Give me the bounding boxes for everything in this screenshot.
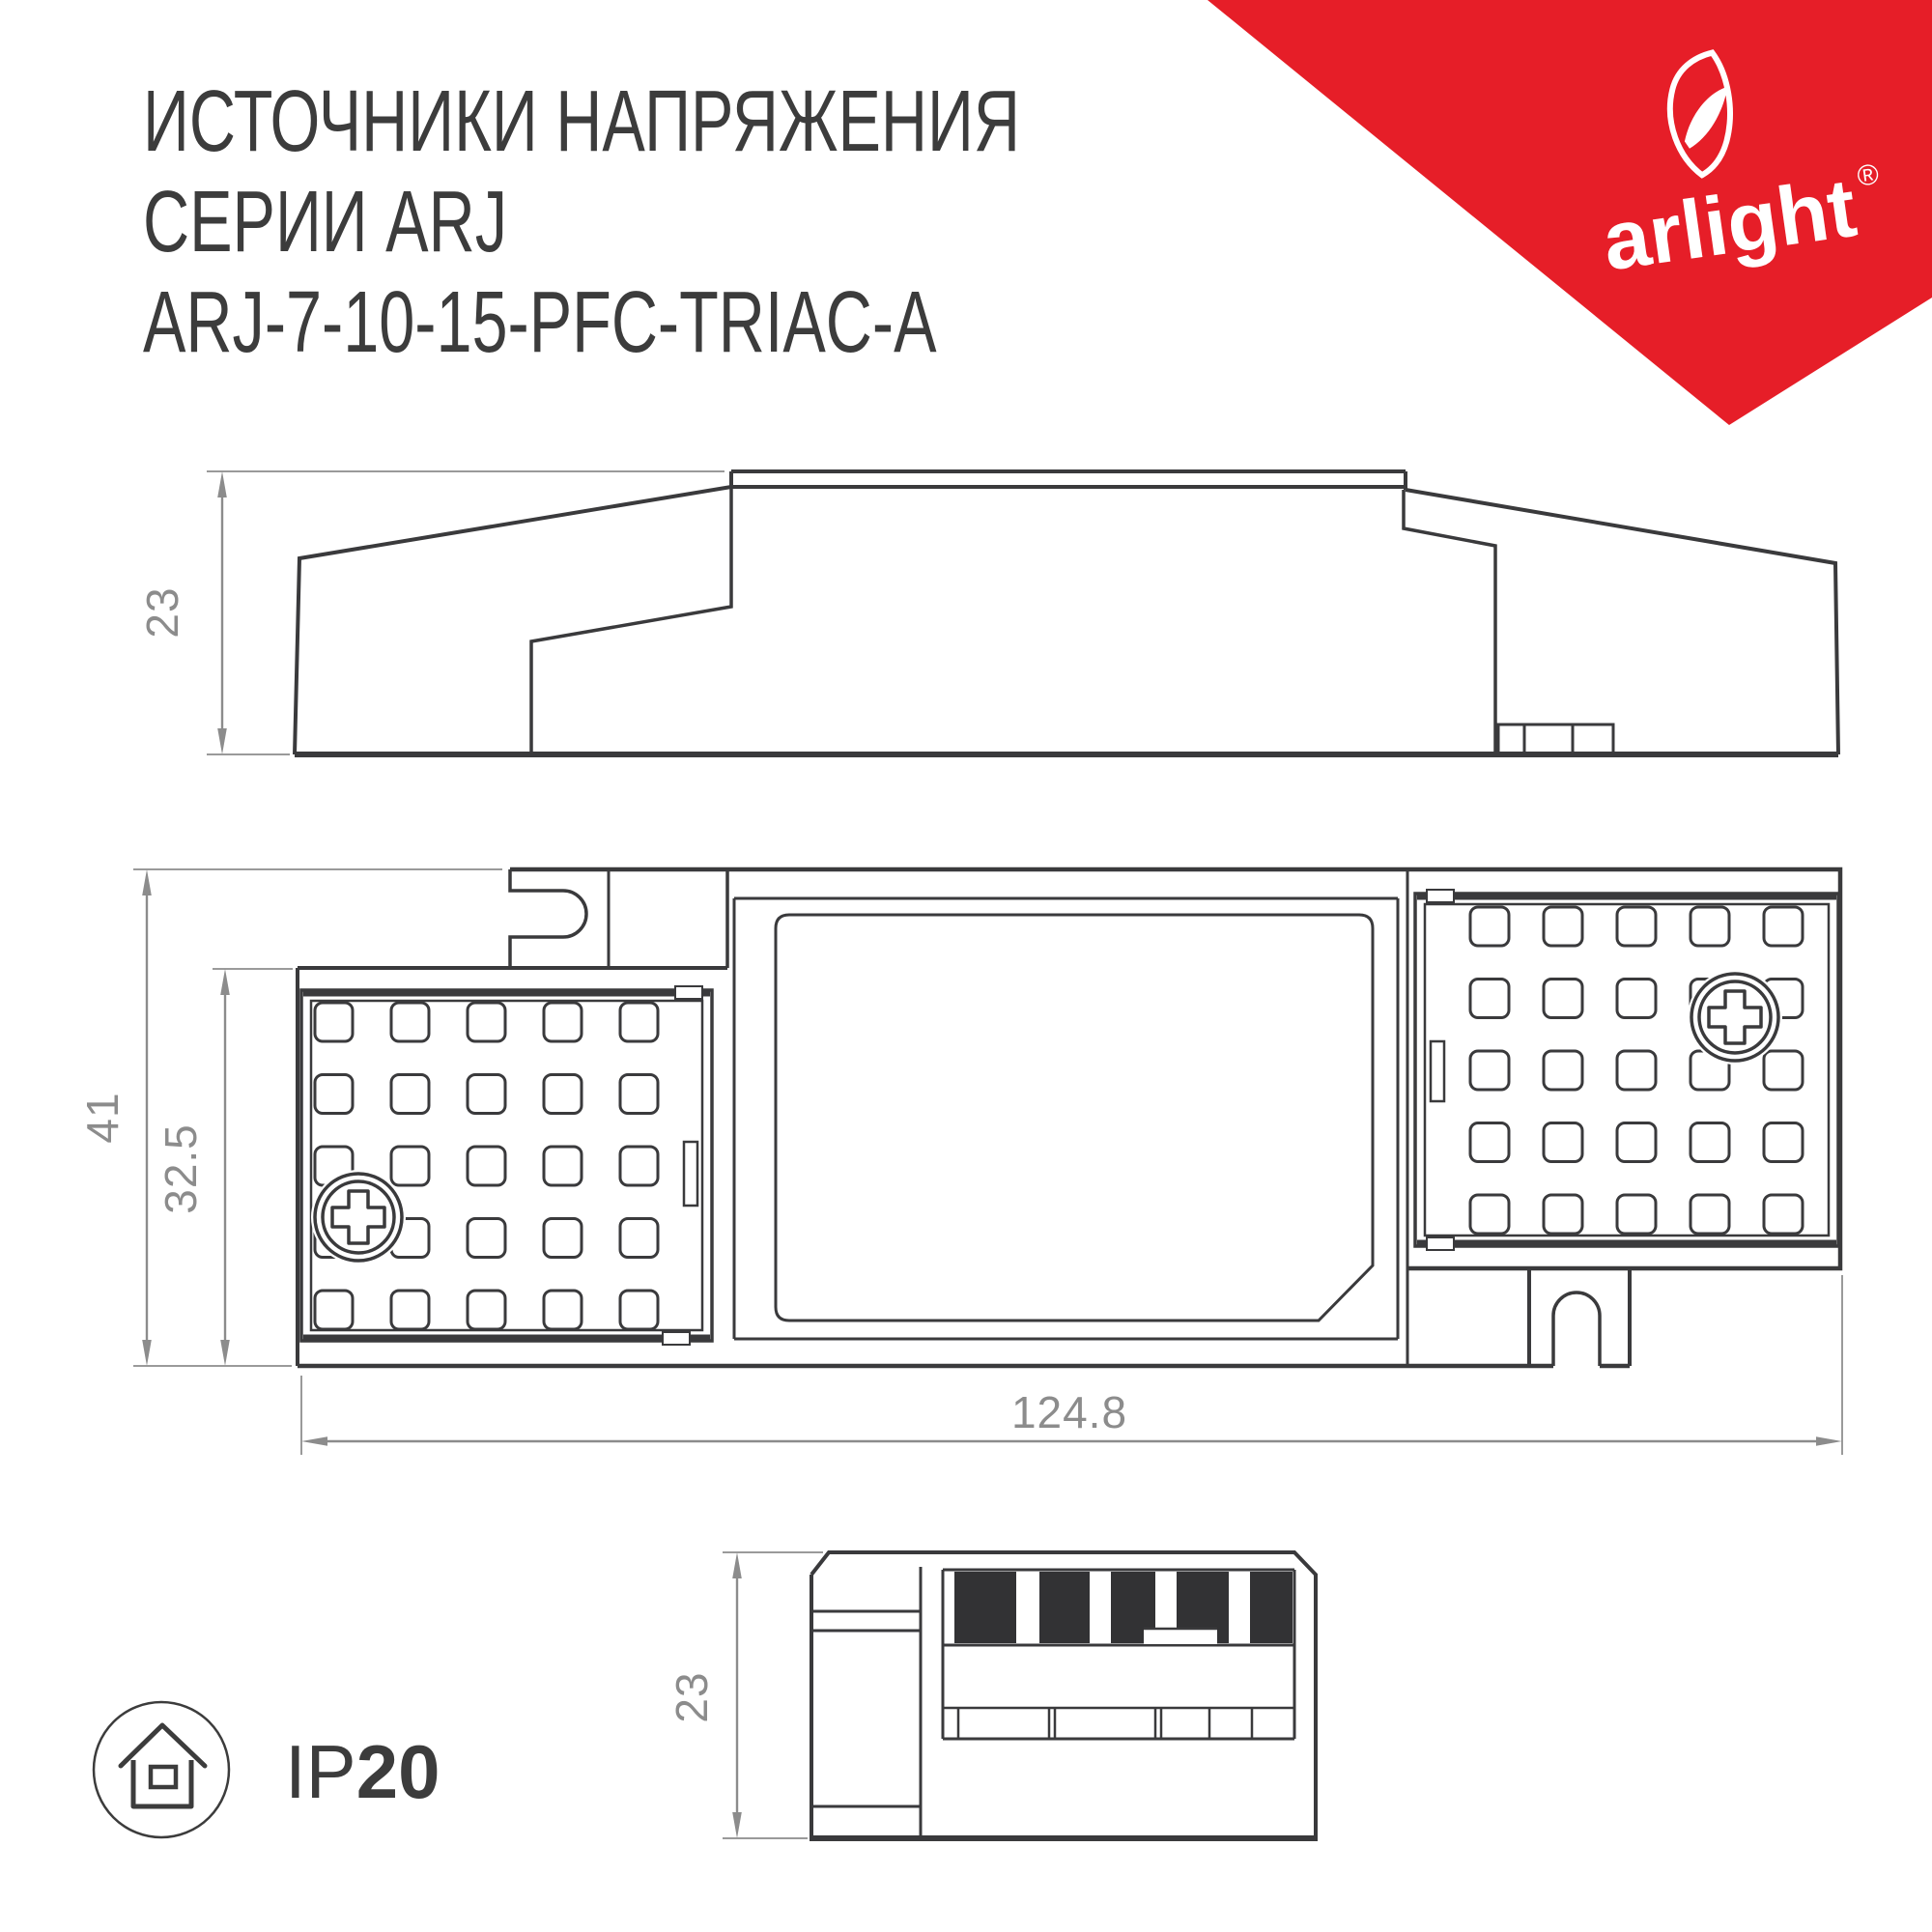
ip-rating-label: IP20 <box>285 1729 440 1814</box>
dimension-plan-height: 41 <box>77 869 502 1366</box>
cover-latch <box>1431 1041 1444 1101</box>
vent-hole <box>620 1075 658 1114</box>
dimension-label-plan-height: 41 <box>77 1092 128 1143</box>
vent-hole <box>1544 980 1582 1018</box>
mounting-tab-bottom-slot <box>1553 1293 1600 1366</box>
vent-hole <box>620 1219 658 1258</box>
side-view-right-outline <box>1406 490 1838 754</box>
datasheet-page: ИСТОЧНИКИ НАПРЯЖЕНИЯ СЕРИИ ARJ ARJ-7-10-… <box>0 0 1932 1932</box>
end-view-clip-lines <box>811 1611 921 1806</box>
cover-latch <box>684 1142 697 1206</box>
vent-hole <box>468 1147 505 1185</box>
vent-hole <box>1470 1123 1509 1162</box>
vent-hole <box>391 1003 429 1041</box>
technical-drawing: arlight ® 23 <box>0 0 1932 1932</box>
side-view-left-outline <box>295 487 731 754</box>
vent-hole <box>620 1003 658 1041</box>
vent-hole <box>1764 1195 1803 1234</box>
screw-right <box>1688 970 1782 1065</box>
side-view-inner-step-right <box>1404 490 1495 754</box>
side-view <box>295 471 1838 754</box>
dimension-side-height: 23 <box>137 471 724 754</box>
logo-registered-mark: ® <box>1856 158 1881 193</box>
vent-hole <box>1544 1051 1582 1090</box>
vent-hole <box>315 1291 353 1329</box>
mounting-tab-bottom-sides <box>1529 1268 1630 1366</box>
dimension-plan-inner-height: 32.5 <box>156 969 293 1366</box>
cover-corner-notch <box>1427 1237 1454 1250</box>
vent-hole <box>391 1291 429 1329</box>
vent-hole <box>1690 1195 1729 1234</box>
vent-cover-right <box>1415 890 1838 1250</box>
vent-hole <box>1764 1123 1803 1162</box>
ip20-house-icon <box>94 1702 229 1837</box>
cover-corner-notch <box>675 986 702 999</box>
mounting-tab-top-slot <box>510 869 586 968</box>
terminal-stripes <box>954 1572 1293 1643</box>
vent-hole <box>1470 1195 1509 1234</box>
dimension-label-side-height: 23 <box>137 586 187 638</box>
plan-inner-walls <box>734 898 1398 1339</box>
vent-hole <box>544 1291 582 1329</box>
vent-hole <box>1544 1195 1582 1234</box>
vent-hole <box>315 1075 353 1114</box>
vent-hole <box>391 1075 429 1114</box>
side-view-terminal-blocks <box>1498 724 1613 754</box>
vent-hole <box>391 1147 429 1185</box>
screw-left <box>311 1170 406 1264</box>
vent-hole <box>1617 907 1656 946</box>
vent-hole <box>1470 1051 1509 1090</box>
vent-hole <box>1617 1123 1656 1162</box>
plan-inner-cover-plate <box>776 915 1373 1321</box>
vent-hole <box>1544 907 1582 946</box>
arlight-logo: arlight ® <box>1207 0 1932 425</box>
side-view-lid-top <box>731 471 1406 490</box>
vent-hole <box>468 1291 505 1329</box>
vent-hole <box>544 1147 582 1185</box>
dimension-label-plan-inner-height: 32.5 <box>156 1123 206 1214</box>
vent-grid-left <box>315 1003 658 1329</box>
ip-rating: IP20 <box>94 1702 440 1837</box>
vent-hole <box>1690 907 1729 946</box>
vent-hole <box>544 1003 582 1041</box>
vent-hole <box>620 1147 658 1185</box>
side-view-inner-step-left <box>531 487 731 754</box>
vent-cover-left <box>301 986 712 1345</box>
cover-corner-notch <box>663 1332 690 1345</box>
vent-hole <box>468 1219 505 1258</box>
vent-hole <box>1764 907 1803 946</box>
vent-hole <box>468 1075 505 1114</box>
plan-view <box>298 869 1840 1366</box>
vent-hole <box>1470 907 1509 946</box>
vent-hole <box>544 1219 582 1258</box>
vent-hole <box>468 1003 505 1041</box>
vent-hole <box>620 1291 658 1329</box>
terminal-screw-row <box>943 1708 1294 1739</box>
terminal-notch <box>1144 1629 1217 1644</box>
end-view <box>810 1552 1318 1838</box>
vent-hole <box>1544 1123 1582 1162</box>
dimension-label-end-height: 23 <box>667 1671 717 1722</box>
vent-hole <box>1470 980 1509 1018</box>
vent-hole <box>1690 1123 1729 1162</box>
dimension-end-height: 23 <box>667 1552 823 1838</box>
vent-grid-right <box>1470 907 1803 1234</box>
vent-hole <box>1617 1051 1656 1090</box>
plan-outline-left <box>298 968 727 1366</box>
vent-hole <box>1617 980 1656 1018</box>
vent-hole <box>1764 1051 1803 1090</box>
cover-corner-notch <box>1427 890 1454 902</box>
vent-hole <box>315 1003 353 1041</box>
vent-hole <box>1617 1195 1656 1234</box>
dimension-label-total-length: 124.8 <box>1011 1387 1127 1437</box>
plan-outline-top-right <box>510 869 1840 1268</box>
vent-hole <box>544 1075 582 1114</box>
